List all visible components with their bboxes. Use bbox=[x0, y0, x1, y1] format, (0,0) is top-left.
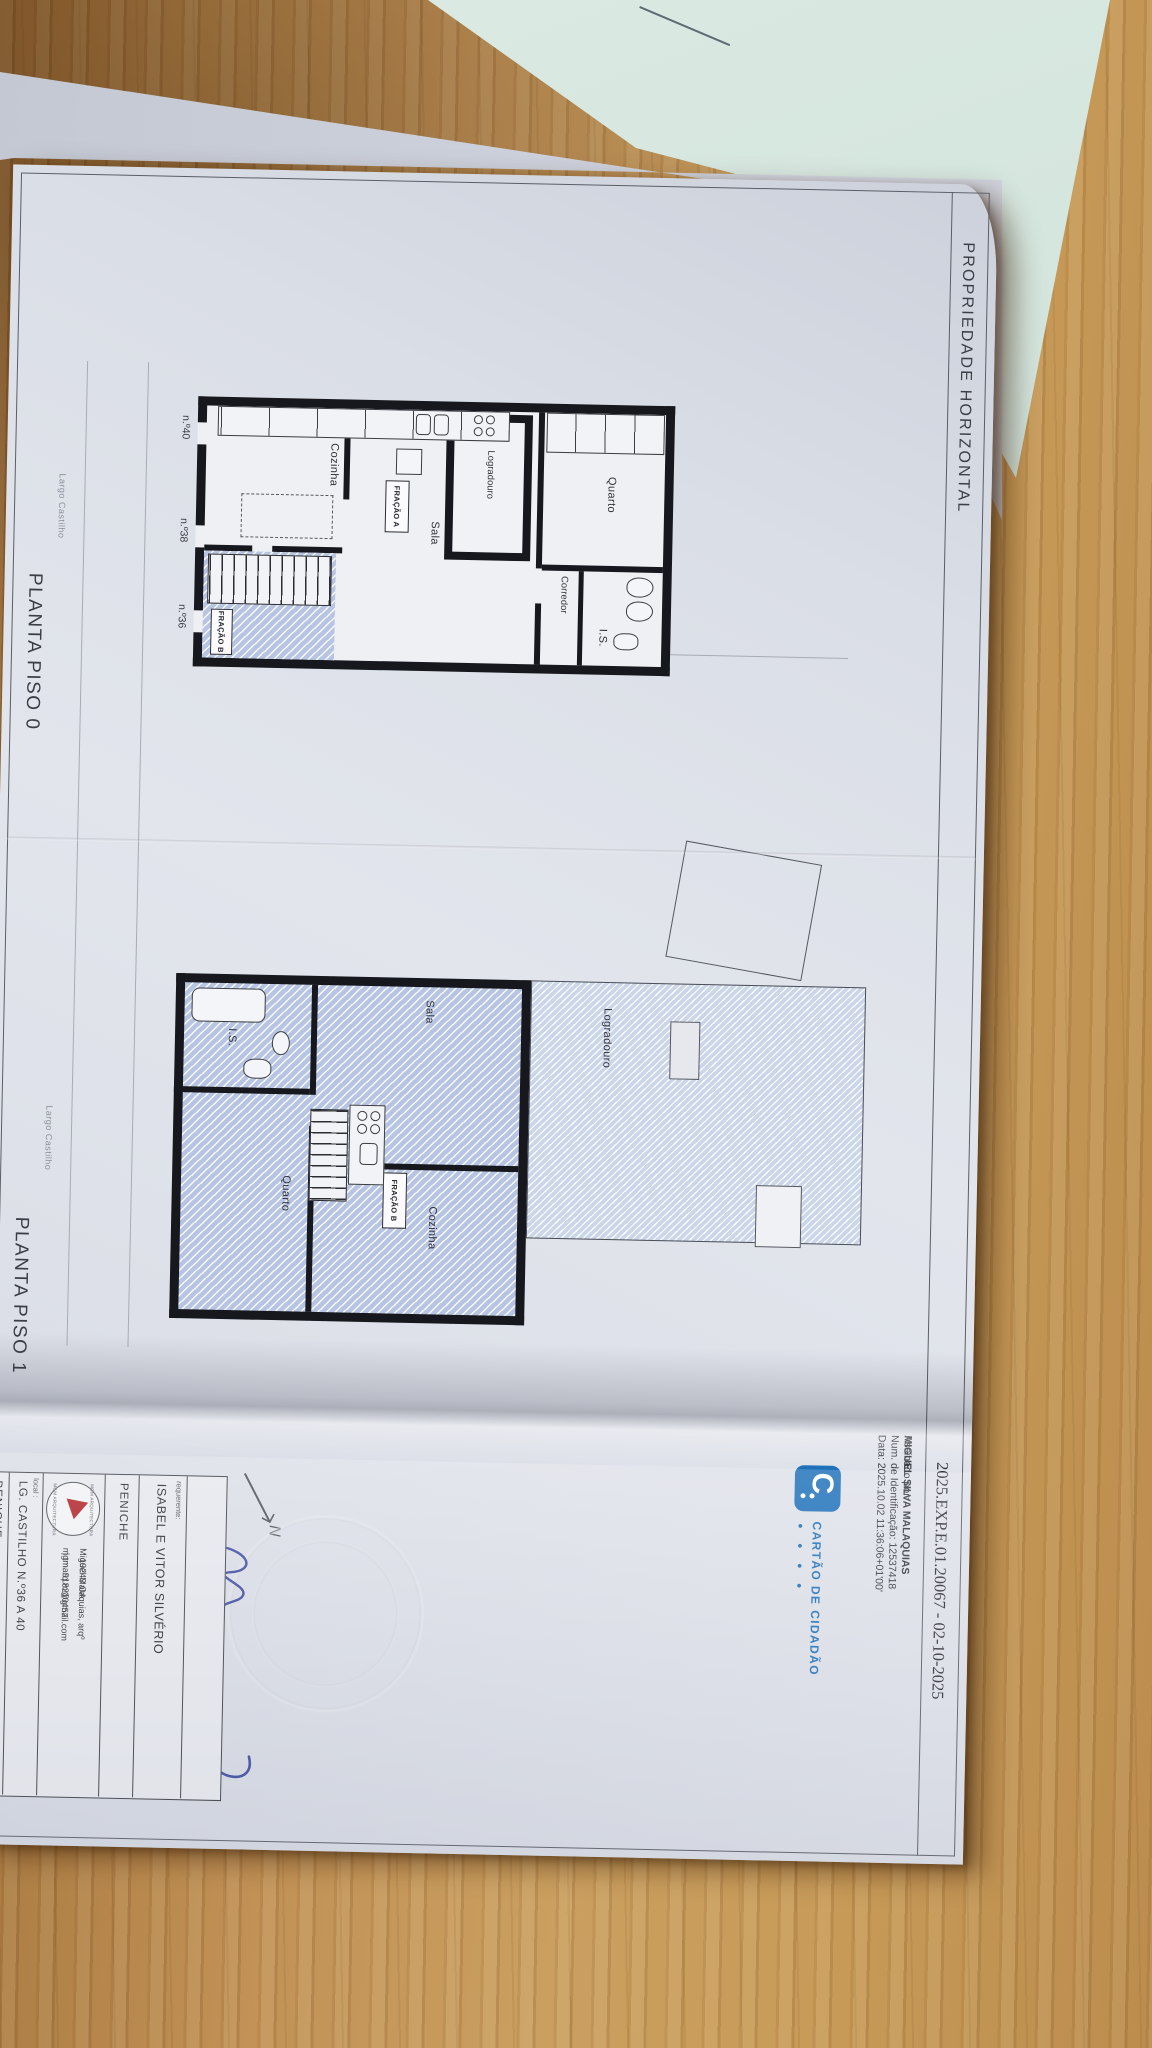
stair-dashed-outline bbox=[240, 493, 333, 539]
fraction-b-box-p1: FRAÇÃO B bbox=[382, 1172, 407, 1228]
wall bbox=[198, 396, 208, 422]
toilet-icon bbox=[613, 633, 638, 651]
bathtub-icon bbox=[191, 987, 266, 1023]
bidet-icon bbox=[626, 601, 653, 622]
staircase-p1 bbox=[309, 1109, 349, 1202]
door-number-40: n.º40 bbox=[179, 415, 192, 440]
photo-scene: PROPRIEDADE HORIZONTAL 2025.EXP.E.01.200… bbox=[0, 0, 1152, 2048]
room-label-logradouro: Logradouro bbox=[484, 450, 496, 499]
street-name-piso1: Largo Castilho bbox=[43, 1105, 54, 1170]
piso1-building: Sala Cozinha FRAÇÃO B I.S. Quarto bbox=[169, 973, 531, 1325]
door-number-36: n.º36 bbox=[176, 604, 189, 629]
room-label-quarto: Quarto bbox=[605, 477, 618, 513]
door-number-38: n.º38 bbox=[177, 518, 190, 543]
kitchen-counter bbox=[218, 406, 511, 442]
wall bbox=[577, 571, 584, 665]
wall bbox=[193, 632, 203, 666]
courtyard-hatched bbox=[526, 980, 866, 1245]
fraction-b-box: FRAÇÃO B bbox=[210, 609, 233, 655]
wall bbox=[534, 603, 541, 664]
wall bbox=[196, 444, 207, 525]
floorplan-piso1: Logradouro Sala Cozinha FRAÇÃO B bbox=[169, 973, 866, 1337]
sink-basin-icon bbox=[434, 414, 449, 435]
room-label-cozinha-p1: Cozinha bbox=[426, 1206, 439, 1249]
sink-basin-icon bbox=[359, 1143, 377, 1165]
room-label-quarto-p1: Quarto bbox=[279, 1175, 292, 1211]
plan-title-piso0: PLANTA PISO 0 bbox=[20, 573, 45, 731]
courtyard-structure bbox=[755, 1185, 802, 1248]
fold-crease-shadow bbox=[0, 1332, 974, 1473]
document-sheet: PROPRIEDADE HORIZONTAL 2025.EXP.E.01.200… bbox=[0, 164, 998, 1864]
neighbor-structure-outline bbox=[665, 841, 822, 982]
wall bbox=[542, 565, 663, 574]
staircase bbox=[207, 554, 332, 607]
floorplan-piso0: Quarto I.S. Corredor Logradouro Sala FRA… bbox=[193, 396, 676, 676]
street-name-piso0: Largo Castilho bbox=[56, 473, 67, 538]
room-label-is: I.S. bbox=[596, 629, 608, 647]
toilet-icon bbox=[243, 1058, 271, 1079]
table-icon bbox=[396, 448, 423, 475]
room-label-is-p1: I.S. bbox=[226, 1028, 238, 1046]
sink-basin-icon bbox=[416, 414, 431, 435]
room-label-sala: Sala bbox=[428, 521, 440, 545]
fraction-a-box: FRAÇÃO A bbox=[385, 480, 410, 532]
sink-icon bbox=[626, 577, 653, 598]
room-label-cozinha: Cozinha bbox=[328, 443, 341, 486]
courtyard-structure bbox=[669, 1021, 700, 1080]
room-label-corredor: Corredor bbox=[558, 576, 570, 614]
wall bbox=[536, 412, 545, 568]
room-label-logradouro-p1: Logradouro bbox=[600, 1008, 613, 1069]
lower-leaf-shade bbox=[0, 1452, 971, 1865]
room-label-sala-p1: Sala bbox=[423, 1000, 435, 1024]
wardrobe-cells bbox=[546, 413, 665, 455]
